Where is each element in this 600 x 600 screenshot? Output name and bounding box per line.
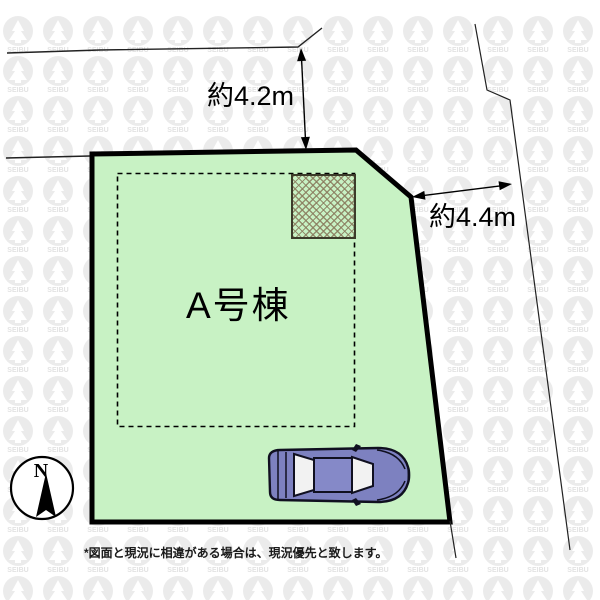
- hatched-area: [291, 174, 356, 239]
- building-label: A号棟: [186, 275, 291, 329]
- dim-arrow-top-line: [302, 60, 306, 138]
- site-plan-drawing: [0, 0, 600, 600]
- disclaimer-text: *図面と現況に相違がある場合は、現況優先と致します。: [84, 544, 387, 561]
- dim-arrow-right-head-right-icon: [499, 181, 513, 190]
- site-plan-canvas: SEIBUSEIBUSEIBUSEIBUSEIBUSEIBUSEIBUSEIBU…: [0, 0, 600, 600]
- dim-arrow-top-head-up-icon: [297, 48, 306, 61]
- compass-icon: N: [7, 450, 79, 526]
- west-boundary-line: [6, 156, 90, 158]
- car-icon: [264, 443, 414, 507]
- dim-arrow-right-head-left-icon: [412, 191, 426, 200]
- boundary-tail-line: [450, 521, 456, 558]
- dim-arrow-top-head-down-icon: [301, 137, 310, 150]
- dim-arrow-right-line: [423, 186, 500, 196]
- north-boundary-line: [7, 28, 322, 53]
- dimension-label-top: 約4.2m: [207, 82, 294, 112]
- dimension-label-right: 約4.4m: [429, 203, 516, 233]
- road-boundary-line: [475, 24, 570, 550]
